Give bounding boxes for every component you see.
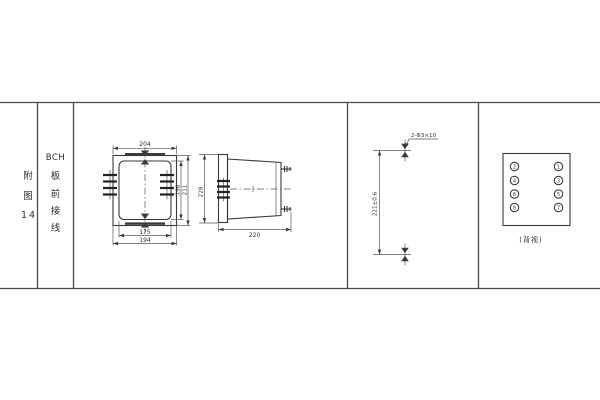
- side-rear-screw-top: [281, 166, 292, 172]
- front-dim-width-label: 204: [139, 141, 151, 148]
- drawing-sheet: 附 图 14 BCH 板 前 接 线: [0, 0, 600, 400]
- figure-title-char-3: 线: [51, 222, 61, 234]
- drill-view: 221±0.6 2-Φ3×10: [373, 133, 439, 266]
- terminal-number: 3: [557, 178, 560, 184]
- drill-dim-spacing-label: 221±0.6: [373, 191, 379, 216]
- drill-hole-note-label: 2-Φ3×10: [411, 133, 437, 139]
- figure-title-column: BCH 板 前 接 线: [46, 153, 66, 234]
- terminal-number: 7: [557, 205, 560, 211]
- side-flange: [219, 155, 228, 223]
- side-view: 220: [217, 155, 293, 240]
- figure-label-char2: 图: [23, 191, 33, 202]
- drill-hole-note: 2-Φ3×10: [405, 133, 438, 148]
- dim-total-height-label: 228: [199, 186, 205, 197]
- front-terminal-stack-right: [160, 170, 174, 200]
- rear-terminals-left: 2 4 6 8: [510, 162, 518, 211]
- front-dim-inner-height-label: 196: [176, 184, 182, 195]
- front-view: 204 196 211 228: [103, 141, 219, 246]
- dim-total-height: 228: [199, 155, 219, 224]
- terminal-number: 8: [513, 205, 516, 211]
- figure-label-char1: 附: [23, 170, 33, 182]
- rear-view-caption: (背视): [519, 235, 542, 244]
- terminal-number: 6: [513, 192, 516, 198]
- figure-label-number: 14: [21, 210, 37, 221]
- terminal-number: 5: [557, 192, 560, 198]
- terminal-number: 2: [513, 164, 516, 170]
- figure-title-char-2: 接: [51, 205, 61, 217]
- front-dim-outer-height-label: 211: [183, 184, 189, 195]
- rear-terminals-right: 1 3 5 7: [554, 162, 562, 211]
- front-dim-outer-width-label: 194: [139, 237, 151, 244]
- figure-label-column: 附 图 14: [21, 170, 37, 221]
- terminal-number: 4: [513, 178, 516, 184]
- drawing-canvas: 附 图 14 BCH 板 前 接 线: [0, 0, 600, 400]
- front-terminal-stack-left: [103, 170, 117, 200]
- figure-title-char-0: 板: [51, 170, 61, 182]
- side-dim-depth-label: 220: [249, 232, 261, 239]
- rear-terminal-view: 2 4 6 8 1 3 5 7 (背视): [503, 154, 570, 245]
- side-rear-screw-bottom: [281, 206, 292, 212]
- drill-dim-spacing: 221±0.6: [373, 151, 412, 255]
- front-dim-inner-width-label: 175: [139, 229, 151, 236]
- terminal-number: 1: [557, 164, 560, 170]
- figure-title-latin: BCH: [46, 153, 66, 163]
- figure-title-char-1: 前: [51, 188, 61, 200]
